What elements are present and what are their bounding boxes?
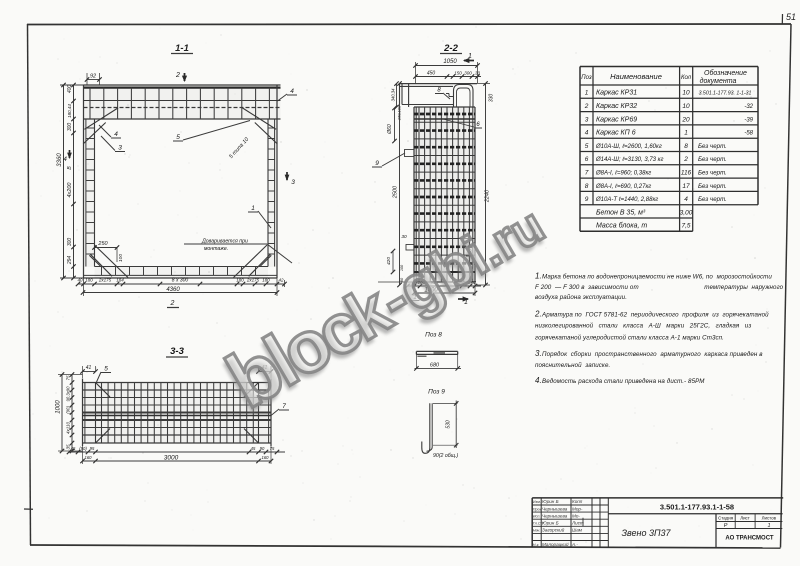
svg-text:680: 680	[430, 362, 440, 368]
svg-text:-32: -32	[744, 104, 753, 110]
svg-text:1000: 1000	[56, 400, 62, 414]
svg-text:Ø8А-I, ℓ=960; 0,38кг: Ø8А-I, ℓ=960; 0,38кг	[595, 170, 651, 177]
svg-text:2-2: 2-2	[443, 43, 458, 54]
svg-text:2: 2	[175, 72, 180, 79]
svg-text:Шам: Шам	[572, 528, 583, 533]
svg-text:Каркас КР69: Каркас КР69	[596, 116, 637, 123]
svg-text:3360: 3360	[57, 153, 63, 167]
svg-text:17: 17	[682, 183, 690, 190]
svg-text:Р: Р	[724, 523, 728, 529]
svg-text:Без черт.: Без черт.	[698, 183, 727, 190]
svg-text:Без черт.: Без черт.	[698, 143, 727, 150]
svg-text:160: 160	[85, 455, 93, 460]
svg-text:1-1: 1-1	[175, 43, 189, 54]
svg-text:-39: -39	[744, 117, 753, 123]
svg-text:Юрин Б: Юрин Б	[542, 521, 559, 526]
svg-text:Нач.: Нач.	[533, 529, 541, 533]
svg-text:документа: документа	[700, 77, 737, 85]
svg-text:4: 4	[63, 156, 67, 163]
svg-text:4.: 4.	[535, 376, 542, 385]
svg-text:42: 42	[278, 278, 284, 283]
svg-text:Листов: Листов	[762, 516, 777, 521]
svg-text:530: 530	[446, 420, 452, 429]
svg-text:F 200 — F 300 в зависимости: F 200 — F 300 в зависимости от температу…	[535, 284, 784, 291]
svg-text:180: 180	[236, 278, 244, 283]
svg-text:Мо-: Мо-	[572, 513, 580, 518]
svg-text:Юрин Б: Юрин Б	[542, 499, 559, 504]
svg-text:(90): (90)	[66, 406, 71, 414]
svg-text:Исп.: Исп.	[533, 514, 541, 518]
svg-text:75: 75	[66, 375, 71, 381]
svg-text:7,5: 7,5	[681, 223, 690, 230]
svg-text:Марка бетона по водонепроницае: Марка бетона по водонепроницаемости не н…	[542, 274, 772, 281]
svg-text:45: 45	[71, 446, 76, 451]
svg-text:4: 4	[585, 130, 589, 137]
svg-text:2500: 2500	[393, 185, 399, 199]
svg-text:Чернышева: Чернышева	[542, 513, 568, 518]
svg-text:51: 51	[786, 12, 796, 22]
svg-text:1: 1	[251, 205, 255, 212]
svg-text:Поз 8: Поз 8	[425, 332, 442, 339]
svg-text:8 х 300: 8 х 300	[172, 278, 189, 284]
svg-text:воздуха района эксплуатации.: воздуха района эксплуатации.	[535, 294, 627, 301]
svg-text:5: 5	[176, 134, 180, 141]
svg-text:Арматура по ГОСТ 5781-62 пер: Арматура по ГОСТ 5781-62 периодического …	[541, 312, 769, 319]
svg-text:Стадия: Стадия	[718, 516, 734, 521]
svg-text:Загорский: Загорский	[542, 527, 565, 533]
svg-text:340,34: 340,34	[391, 88, 396, 101]
svg-text:Ø60: Ø60	[387, 124, 393, 135]
svg-text:2х175: 2х175	[246, 278, 260, 283]
svg-text:Поз 9: Поз 9	[428, 389, 445, 396]
svg-text:5: 5	[104, 366, 108, 373]
svg-text:40: 40	[77, 278, 83, 283]
svg-text:6: 6	[585, 156, 589, 163]
svg-text:9: 9	[585, 196, 589, 203]
svg-text:3.501.1-177.93.1-1-58: 3.501.1-177.93.1-1-58	[660, 503, 734, 512]
svg-text:450: 450	[427, 71, 436, 77]
svg-text:250: 250	[97, 241, 108, 247]
svg-text:4х200: 4х200	[67, 182, 73, 198]
svg-text:А.-: А.-	[571, 542, 578, 547]
svg-text:4: 4	[684, 196, 688, 203]
svg-text:АО ТРАНСМОСТ: АО ТРАНСМОСТ	[725, 536, 773, 542]
svg-text:3,00: 3,00	[680, 209, 693, 216]
svg-text:400: 400	[67, 85, 73, 94]
svg-text:116: 116	[681, 170, 692, 177]
svg-text:300: 300	[67, 238, 73, 247]
svg-text:Без черт.: Без черт.	[698, 170, 727, 177]
svg-text:30: 30	[401, 234, 407, 240]
svg-text:пояснительной записке.: пояснительной записке.	[535, 362, 610, 369]
svg-text:Без черт.: Без черт.	[698, 196, 727, 203]
svg-text:Ø10А-Т ℓ=1440, 2,88кг: Ø10А-Т ℓ=1440, 2,88кг	[595, 196, 658, 203]
svg-text:92: 92	[90, 74, 96, 80]
svg-text:2: 2	[683, 156, 688, 163]
svg-text:(90): (90)	[79, 446, 87, 451]
svg-text:монтаже.: монтаже.	[204, 246, 228, 252]
svg-text:3.: 3.	[535, 349, 542, 358]
svg-text:Звено 3П37: Звено 3П37	[621, 528, 671, 538]
svg-text:Ведомость расхода стали привед: Ведомость расхода стали приведена на дис…	[542, 378, 705, 385]
svg-text:Кол: Кол	[681, 75, 692, 81]
svg-text:Ø14А-Ш; ℓ=3130, 3,73 кг: Ø14А-Ш; ℓ=3130, 3,73 кг	[595, 156, 664, 163]
svg-text:8: 8	[585, 183, 589, 190]
svg-text:2: 2	[584, 103, 589, 110]
svg-text:Поз: Поз	[581, 75, 592, 81]
svg-text:95: 95	[90, 446, 95, 451]
svg-text:4х110: 4х110	[66, 422, 71, 434]
svg-text:Наименование: Наименование	[610, 72, 662, 81]
svg-text:Порядок сборки пространствен: Порядок сборки пространственного арматур…	[542, 351, 763, 358]
svg-text:4: 4	[290, 88, 294, 95]
svg-text:Бетон В 35, м³: Бетон В 35, м³	[596, 209, 646, 216]
svg-text:20: 20	[681, 116, 690, 123]
svg-text:294: 294	[67, 256, 73, 266]
svg-text:2х175: 2х175	[98, 278, 112, 283]
svg-text:90,3х90: 90,3х90	[66, 386, 71, 402]
svg-text:100: 100	[118, 254, 124, 262]
svg-text:300: 300	[464, 71, 472, 76]
svg-text:41: 41	[86, 365, 92, 371]
svg-text:90(2 общ.): 90(2 общ.)	[433, 453, 458, 459]
svg-text:75: 75	[270, 446, 275, 451]
svg-text:низколегированной стали кл: низколегированной стали класса А-Ш марки…	[535, 323, 751, 330]
svg-text:180: 180	[85, 278, 93, 283]
svg-text:Лист: Лист	[740, 516, 750, 521]
svg-text:Мор-: Мор-	[572, 506, 583, 511]
svg-text:1: 1	[684, 130, 688, 137]
svg-text:Изм.: Изм.	[533, 500, 541, 504]
svg-text:-58: -58	[744, 131, 753, 137]
svg-text:Обозначение: Обозначение	[704, 69, 747, 77]
svg-text:180: 180	[262, 278, 270, 283]
svg-text:Пров: Пров	[533, 507, 542, 511]
svg-text:3: 3	[585, 116, 589, 123]
svg-text:3.501.1-177.93. 1-1-31: 3.501.1-177.93. 1-1-31	[699, 91, 752, 97]
svg-text:8: 8	[684, 143, 688, 150]
svg-text:7: 7	[585, 170, 589, 177]
svg-text:3: 3	[118, 145, 122, 152]
svg-text:180,44: 180,44	[67, 104, 72, 118]
svg-text:9: 9	[375, 160, 379, 167]
svg-text:Лист: Лист	[571, 521, 584, 526]
svg-text:4: 4	[114, 131, 118, 138]
svg-text:4360: 4360	[166, 287, 180, 293]
svg-text:184: 184	[116, 278, 124, 283]
svg-text:1: 1	[585, 90, 589, 97]
svg-text:Каркас КР32: Каркас КР32	[596, 103, 637, 110]
svg-text:Малорацкий: Малорацкий	[542, 541, 569, 547]
svg-text:горячекатаной углеродистой ста: горячекатаной углеродистой стали класса …	[535, 335, 724, 342]
svg-text:2: 2	[170, 300, 175, 307]
svg-text:2.: 2.	[534, 310, 542, 319]
svg-text:90: 90	[260, 446, 265, 451]
svg-text:1: 1	[767, 523, 770, 529]
svg-text:1050: 1050	[443, 59, 457, 65]
svg-text:10: 10	[682, 90, 690, 97]
svg-text:5: 5	[585, 143, 589, 150]
svg-text:1.: 1.	[535, 272, 542, 281]
svg-text:330: 330	[489, 94, 495, 103]
svg-text:3000: 3000	[164, 455, 179, 462]
svg-text:Копп: Копп	[572, 499, 583, 504]
svg-text:160: 160	[262, 455, 270, 460]
svg-text:Ø10А-Ш, ℓ=2600, 1,60кг: Ø10А-Ш, ℓ=2600, 1,60кг	[595, 143, 662, 150]
svg-text:45: 45	[251, 446, 256, 451]
svg-text:Без черт.: Без черт.	[698, 156, 727, 163]
svg-text:Ø8А-I, ℓ=690, 0,27кг: Ø8А-I, ℓ=690, 0,27кг	[595, 183, 651, 190]
svg-text:Каркас КР31: Каркас КР31	[596, 90, 637, 97]
svg-text:3: 3	[291, 179, 295, 186]
svg-text:Чернышева: Чернышева	[542, 506, 568, 511]
svg-text:3-3: 3-3	[170, 346, 184, 357]
svg-text:Каркас КП 6: Каркас КП 6	[596, 130, 636, 137]
svg-text:300: 300	[67, 123, 73, 132]
svg-text:Н.к.: Н.к.	[533, 543, 540, 547]
svg-text:10: 10	[682, 103, 690, 110]
svg-text:Масса блока, т: Масса блока, т	[596, 222, 647, 230]
svg-text:160,100: 160,100	[397, 105, 402, 120]
